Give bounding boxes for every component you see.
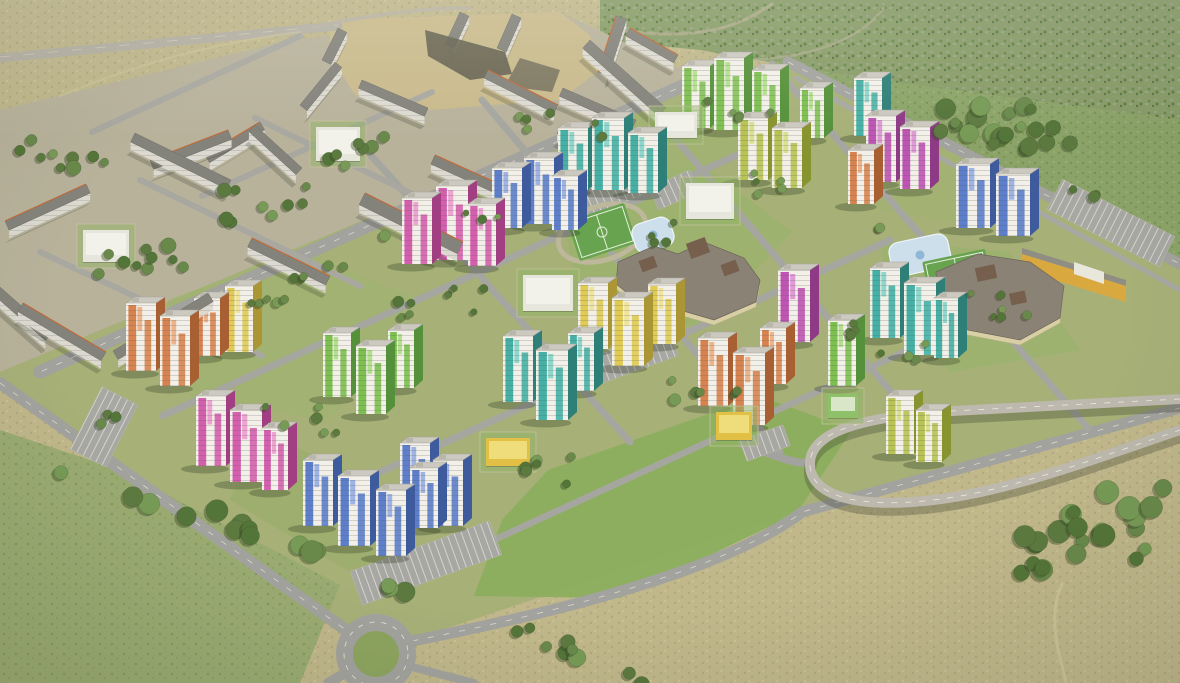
masterplan-aerial-render (0, 0, 1180, 683)
masterplan-render-stage (0, 0, 1180, 683)
atmosphere-layer (0, 0, 1180, 683)
vignette (0, 0, 1180, 683)
